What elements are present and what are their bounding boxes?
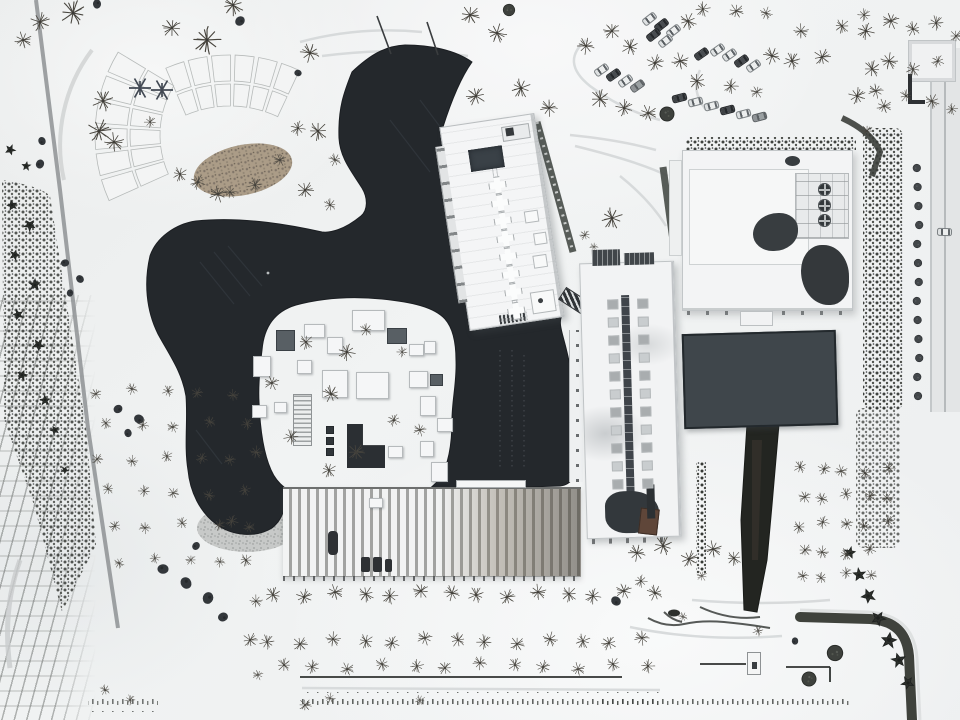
tree-b	[930, 54, 945, 69]
tree-b	[510, 637, 524, 650]
tree-b	[881, 460, 896, 476]
tree-b	[213, 555, 226, 568]
tree-m	[913, 182, 922, 191]
tree-b	[124, 693, 136, 706]
tree-b	[138, 521, 152, 535]
tree-b	[633, 573, 648, 589]
tree-b	[113, 557, 125, 570]
tree-c	[869, 609, 887, 627]
tree-b	[538, 98, 558, 118]
tree-b	[374, 656, 390, 673]
tree-b	[834, 464, 849, 478]
tree-b	[575, 35, 596, 56]
tree-b	[461, 7, 479, 23]
tree-b	[240, 554, 251, 566]
tree-b	[277, 658, 290, 672]
tree-b	[241, 417, 254, 431]
tree-b	[626, 542, 647, 563]
tree-b	[814, 491, 829, 507]
tree-b	[839, 487, 852, 501]
tree-b	[86, 117, 114, 144]
tree-b	[450, 631, 466, 648]
tree-b	[149, 552, 161, 565]
tree-b	[906, 62, 919, 77]
tree-b	[928, 14, 945, 32]
tree-r	[825, 643, 846, 664]
tree-b	[409, 658, 424, 674]
tree-b	[212, 518, 226, 532]
tree-b	[899, 89, 912, 103]
tree-u	[609, 595, 622, 608]
tree-b	[704, 540, 724, 559]
tree-b	[904, 20, 921, 38]
tree-b	[437, 661, 452, 675]
tree-b	[464, 85, 486, 106]
tree-b	[839, 566, 853, 580]
tree-b	[694, 1, 711, 19]
tree-b	[758, 5, 773, 21]
tree-b	[357, 585, 375, 603]
tree-b	[125, 382, 139, 396]
tree-b	[606, 656, 621, 672]
tree-b	[601, 207, 623, 230]
tree-b	[815, 514, 831, 530]
tree-b	[298, 41, 321, 65]
tree-u	[37, 136, 47, 147]
tree-b	[259, 633, 276, 650]
tree-m	[914, 278, 923, 287]
tree-b	[796, 569, 809, 582]
tree-c	[61, 466, 69, 475]
tree-b	[309, 121, 328, 141]
tree-b	[62, 1, 83, 24]
tree-b	[264, 376, 279, 390]
tree-b	[730, 5, 744, 17]
tree-b	[292, 636, 308, 651]
tree-b	[102, 482, 115, 495]
tree-b	[858, 466, 872, 480]
tree-r	[800, 670, 819, 689]
tree-b	[752, 625, 763, 637]
tree-b	[486, 22, 509, 46]
tree-u	[792, 637, 799, 645]
tree-b	[324, 692, 337, 705]
tree-c	[6, 199, 18, 210]
tree-u	[201, 591, 215, 606]
tree-b	[190, 24, 223, 58]
tree-b	[498, 588, 517, 606]
tree-u	[66, 289, 73, 297]
tree-b	[93, 89, 114, 111]
tree-c	[851, 567, 867, 583]
tree-b	[877, 99, 893, 114]
tree-c	[49, 424, 61, 436]
tree-b	[359, 323, 373, 337]
tree-b	[380, 587, 399, 606]
tree-b	[143, 115, 157, 129]
tree-u	[112, 403, 124, 415]
tree-c	[12, 309, 24, 321]
tree-m	[914, 353, 925, 364]
tree-m	[913, 373, 921, 381]
tree-b	[792, 22, 810, 40]
tree-b	[761, 45, 782, 66]
tree-b	[882, 13, 900, 30]
tree-b	[336, 342, 357, 363]
tree-b	[591, 89, 609, 108]
tree-b	[91, 453, 104, 465]
tree-b	[511, 78, 531, 99]
tree-b	[162, 451, 172, 462]
tree-b	[323, 197, 337, 212]
tree-b	[864, 60, 879, 77]
tree-c	[881, 632, 897, 648]
tree-b	[880, 491, 895, 506]
tree-b	[616, 584, 632, 599]
tree-b	[416, 630, 433, 646]
tree-b	[243, 521, 255, 532]
tree-b	[640, 658, 657, 675]
tree-b	[677, 611, 689, 623]
tree-b	[722, 77, 740, 95]
tree-b	[881, 513, 896, 528]
tree-b	[101, 417, 112, 429]
tree-m	[913, 258, 924, 269]
tree-b	[614, 97, 635, 118]
tree-b	[603, 23, 621, 40]
tree-b	[29, 10, 52, 33]
tree-m	[914, 335, 923, 344]
tree-c	[861, 589, 875, 604]
tree-b	[90, 389, 101, 399]
tree-b	[327, 584, 345, 601]
tree-c	[28, 278, 43, 293]
tree-b	[413, 584, 429, 598]
tree-b	[799, 492, 811, 503]
tree-b	[190, 386, 204, 399]
tree-b	[167, 421, 179, 432]
tree-b	[396, 345, 409, 358]
tree-b	[174, 167, 187, 181]
tree-b	[242, 632, 259, 648]
tree-b	[162, 384, 174, 397]
tree-b	[327, 152, 342, 167]
tree-b	[247, 176, 264, 193]
tree-b	[299, 699, 312, 711]
tree-c	[40, 395, 50, 405]
tree-m	[912, 163, 923, 174]
tree-u	[233, 14, 246, 27]
tree-b	[726, 550, 741, 566]
tree-b	[815, 571, 827, 584]
tree-u	[217, 611, 229, 623]
tree-b	[575, 633, 590, 649]
tree-b	[509, 658, 521, 671]
tree-c	[15, 368, 28, 381]
tree-c	[900, 675, 915, 691]
tree-b	[866, 570, 877, 580]
tree-b	[671, 52, 690, 71]
tree-b	[383, 634, 401, 652]
tree-b	[168, 488, 179, 498]
tree-b	[321, 383, 341, 403]
tree-b	[360, 634, 373, 648]
tree-u	[178, 575, 193, 591]
tree-b	[195, 451, 209, 465]
tree-b	[202, 488, 216, 502]
tree-b	[248, 594, 264, 609]
tree-b	[299, 335, 313, 350]
tree-c	[890, 651, 908, 669]
tree-u	[191, 541, 202, 552]
tree-b	[203, 415, 217, 429]
tree-m	[913, 315, 923, 325]
tree-b	[840, 518, 853, 530]
tree-b	[221, 0, 244, 18]
tree-b	[99, 684, 111, 697]
tree-b	[248, 444, 264, 460]
tree-m	[914, 220, 924, 230]
tree-b	[125, 454, 139, 468]
tree-b	[529, 583, 548, 601]
tree-b	[857, 518, 872, 533]
tree-m	[912, 296, 922, 306]
tree-b	[924, 93, 941, 111]
tree-b	[442, 583, 462, 603]
tree-b	[340, 663, 354, 676]
tree-b	[415, 695, 425, 706]
tree-b	[137, 484, 151, 498]
tree-b	[468, 586, 484, 603]
tree-b	[814, 544, 830, 560]
tree-b	[697, 572, 707, 581]
tree-b	[688, 72, 706, 91]
tree-c	[23, 217, 38, 232]
tree-b	[208, 185, 227, 203]
tree-b	[879, 51, 900, 72]
tree-b	[645, 583, 664, 602]
tree-b	[322, 463, 335, 477]
tree-b	[855, 21, 876, 42]
tree-u	[34, 158, 45, 170]
tree-b	[189, 173, 207, 191]
tree-b	[751, 87, 763, 98]
tree-b	[783, 51, 801, 70]
tree-b	[945, 102, 958, 116]
tree-u	[294, 69, 303, 77]
tree-b	[347, 443, 365, 460]
tree-b	[108, 520, 122, 533]
tree-b	[862, 542, 877, 557]
tree-u	[93, 0, 102, 9]
tree-b	[14, 31, 33, 49]
tree-r	[659, 106, 676, 123]
tree-b	[177, 517, 188, 529]
tree-m	[913, 240, 921, 248]
aerial-photo-root	[0, 0, 960, 720]
tree-b	[475, 633, 493, 651]
tree-b	[252, 670, 263, 681]
tree-b	[226, 388, 240, 402]
tree-b	[103, 131, 126, 153]
tree-b	[794, 461, 805, 473]
trees-layer	[0, 0, 960, 720]
tree-b	[224, 513, 240, 529]
car	[937, 228, 952, 237]
tree-b	[304, 658, 321, 675]
tree-b	[793, 521, 805, 534]
tree-b	[535, 659, 552, 676]
tree-b	[847, 85, 868, 106]
tree-b	[541, 630, 559, 648]
tree-u	[157, 564, 168, 574]
tree-b	[283, 428, 300, 445]
tree-b	[950, 30, 960, 43]
tree-b	[867, 83, 884, 99]
tree-b	[162, 19, 181, 36]
tree-b	[640, 105, 658, 121]
tree-b	[266, 587, 279, 602]
tree-b	[223, 454, 236, 467]
tree-c	[20, 160, 31, 171]
tree-b	[654, 536, 672, 555]
tree-b	[273, 154, 286, 166]
tree-m	[913, 391, 923, 401]
tree-b	[645, 53, 666, 73]
tree-b	[856, 7, 871, 23]
tree-b	[799, 544, 812, 557]
tree-b	[579, 229, 591, 241]
tree-b	[583, 586, 603, 606]
tree-b	[589, 242, 599, 252]
tree-b	[600, 635, 618, 652]
tree-b	[185, 555, 196, 566]
tree-b	[295, 587, 315, 606]
tree-b	[471, 654, 488, 671]
tree-b	[835, 19, 849, 34]
tree-b	[561, 586, 577, 603]
tree-b	[571, 662, 587, 677]
tree-c	[10, 250, 20, 260]
tree-b	[622, 38, 637, 54]
tree-b	[860, 125, 873, 137]
tree-m	[914, 201, 924, 211]
tree-b	[412, 423, 426, 437]
tree-b	[633, 629, 651, 646]
tree-u	[124, 428, 133, 438]
tree-r	[501, 2, 517, 18]
tree-b	[296, 181, 315, 199]
tree-b	[289, 119, 307, 137]
tree-b	[816, 461, 832, 476]
tree-c	[31, 338, 44, 352]
tree-u	[60, 259, 69, 267]
tree-b	[239, 484, 251, 497]
tree-b	[386, 413, 402, 428]
tree-b	[679, 549, 700, 569]
tree-u	[75, 274, 86, 285]
tree-b	[863, 489, 878, 503]
tree-c	[3, 144, 16, 157]
tree-b	[813, 47, 833, 66]
tree-b	[324, 630, 342, 648]
